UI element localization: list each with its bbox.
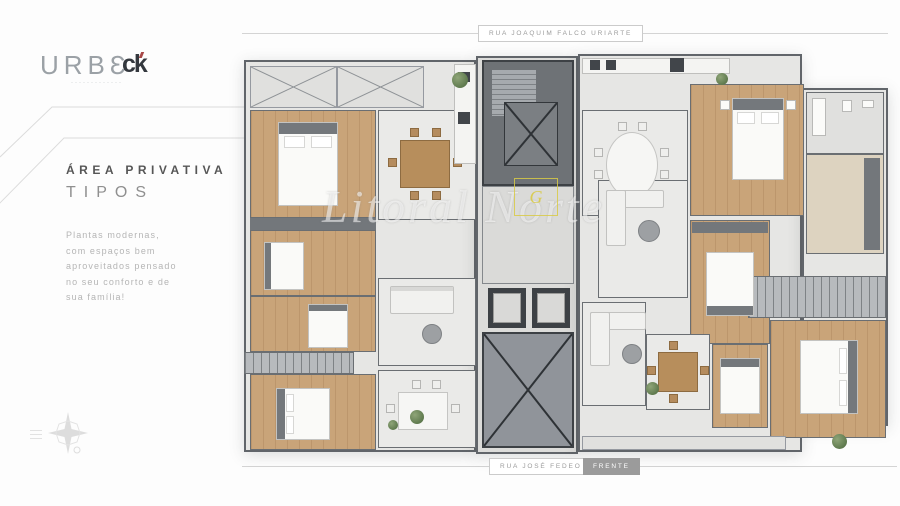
wardrobe [864, 158, 880, 250]
street-label-top: RUA JOAQUIM FALCO URIARTE [478, 25, 643, 42]
nightstand [720, 100, 730, 110]
desk [692, 222, 768, 233]
coffee-table [622, 344, 642, 364]
x-mark [484, 334, 572, 446]
bed [308, 304, 348, 348]
chair [386, 404, 395, 413]
terrace-bottom [582, 436, 786, 450]
dining-table [658, 352, 698, 392]
chair [700, 366, 709, 375]
bed [706, 252, 754, 316]
coffee-table [638, 220, 660, 242]
plant [716, 73, 728, 85]
dining-table [400, 140, 450, 188]
chair [669, 394, 678, 403]
chair [432, 380, 441, 389]
bed [278, 122, 338, 206]
bed [276, 388, 330, 440]
chair [410, 128, 419, 137]
sink [862, 100, 874, 108]
description-line: no seu conforto e de [66, 275, 246, 291]
nightstand [786, 100, 796, 110]
dining-table [398, 392, 448, 430]
bed [264, 242, 304, 290]
chair [388, 158, 397, 167]
chair [432, 191, 441, 200]
dining-table-oval [606, 132, 658, 198]
stair-core-bottom [482, 332, 574, 448]
description-line: sua família! [66, 290, 246, 306]
urbe-logo: URBƐ [40, 50, 131, 81]
description-line: com espaços bem [66, 244, 246, 260]
plant [646, 382, 659, 395]
shaft [504, 102, 558, 166]
plant [832, 434, 847, 449]
page-subtitle: TIPOS [66, 184, 246, 202]
brochure-page: URBƐ ············· ck ÁREA PRIVATIVA TIP… [0, 0, 900, 506]
chair [432, 128, 441, 137]
x-mark [251, 67, 336, 107]
dresser [250, 218, 376, 230]
balcony-left [244, 352, 354, 374]
front-badge: FRENTE [583, 458, 640, 475]
sofa-chaise [590, 312, 610, 366]
coffee-table [422, 324, 442, 344]
sink [458, 112, 470, 124]
sofa [390, 286, 454, 314]
plant [452, 72, 468, 88]
plant [410, 410, 424, 424]
chair [451, 404, 460, 413]
chair [594, 148, 603, 157]
kitchen-counter-top-right [582, 58, 730, 74]
chair [594, 170, 603, 179]
description-line: Plantas modernas, [66, 228, 246, 244]
chair [410, 191, 419, 200]
chair [412, 380, 421, 389]
x-mark [338, 67, 423, 107]
bed [800, 340, 858, 414]
bed [720, 358, 760, 414]
chair [647, 366, 656, 375]
urbe-logo-subtext: ············· [71, 80, 123, 86]
chair [669, 341, 678, 350]
plant [388, 420, 398, 430]
toilet [842, 100, 852, 112]
chair [618, 122, 627, 131]
chair [660, 148, 669, 157]
chair [660, 170, 669, 179]
fine-print-lines [30, 430, 42, 442]
page-title: ÁREA PRIVATIVA [66, 163, 246, 177]
x-mark [505, 103, 557, 165]
sink [606, 60, 616, 70]
intro-block: ÁREA PRIVATIVA TIPOS Plantas modernas, c… [66, 163, 246, 306]
fridge [670, 58, 684, 72]
bed [732, 98, 784, 180]
balcony-right [748, 276, 886, 318]
compass-rose-icon [46, 412, 92, 462]
elevator-2 [532, 288, 570, 328]
street-label-bottom: RUA JOSÉ FEDEO [489, 458, 593, 475]
description-line: aproveitados pensado [66, 259, 246, 275]
floor-plan: Litoral Norte G [242, 52, 888, 456]
terrace-top-left [250, 66, 337, 108]
terrace-top-left-2 [337, 66, 424, 108]
description-paragraph: Plantas modernas, com espaços bem aprove… [66, 228, 246, 306]
chair [638, 122, 647, 131]
bathtub [812, 98, 826, 136]
elevator-1 [488, 288, 526, 328]
sofa-chaise [606, 190, 626, 246]
stove [590, 60, 600, 70]
watermark-logo: G [514, 178, 558, 216]
